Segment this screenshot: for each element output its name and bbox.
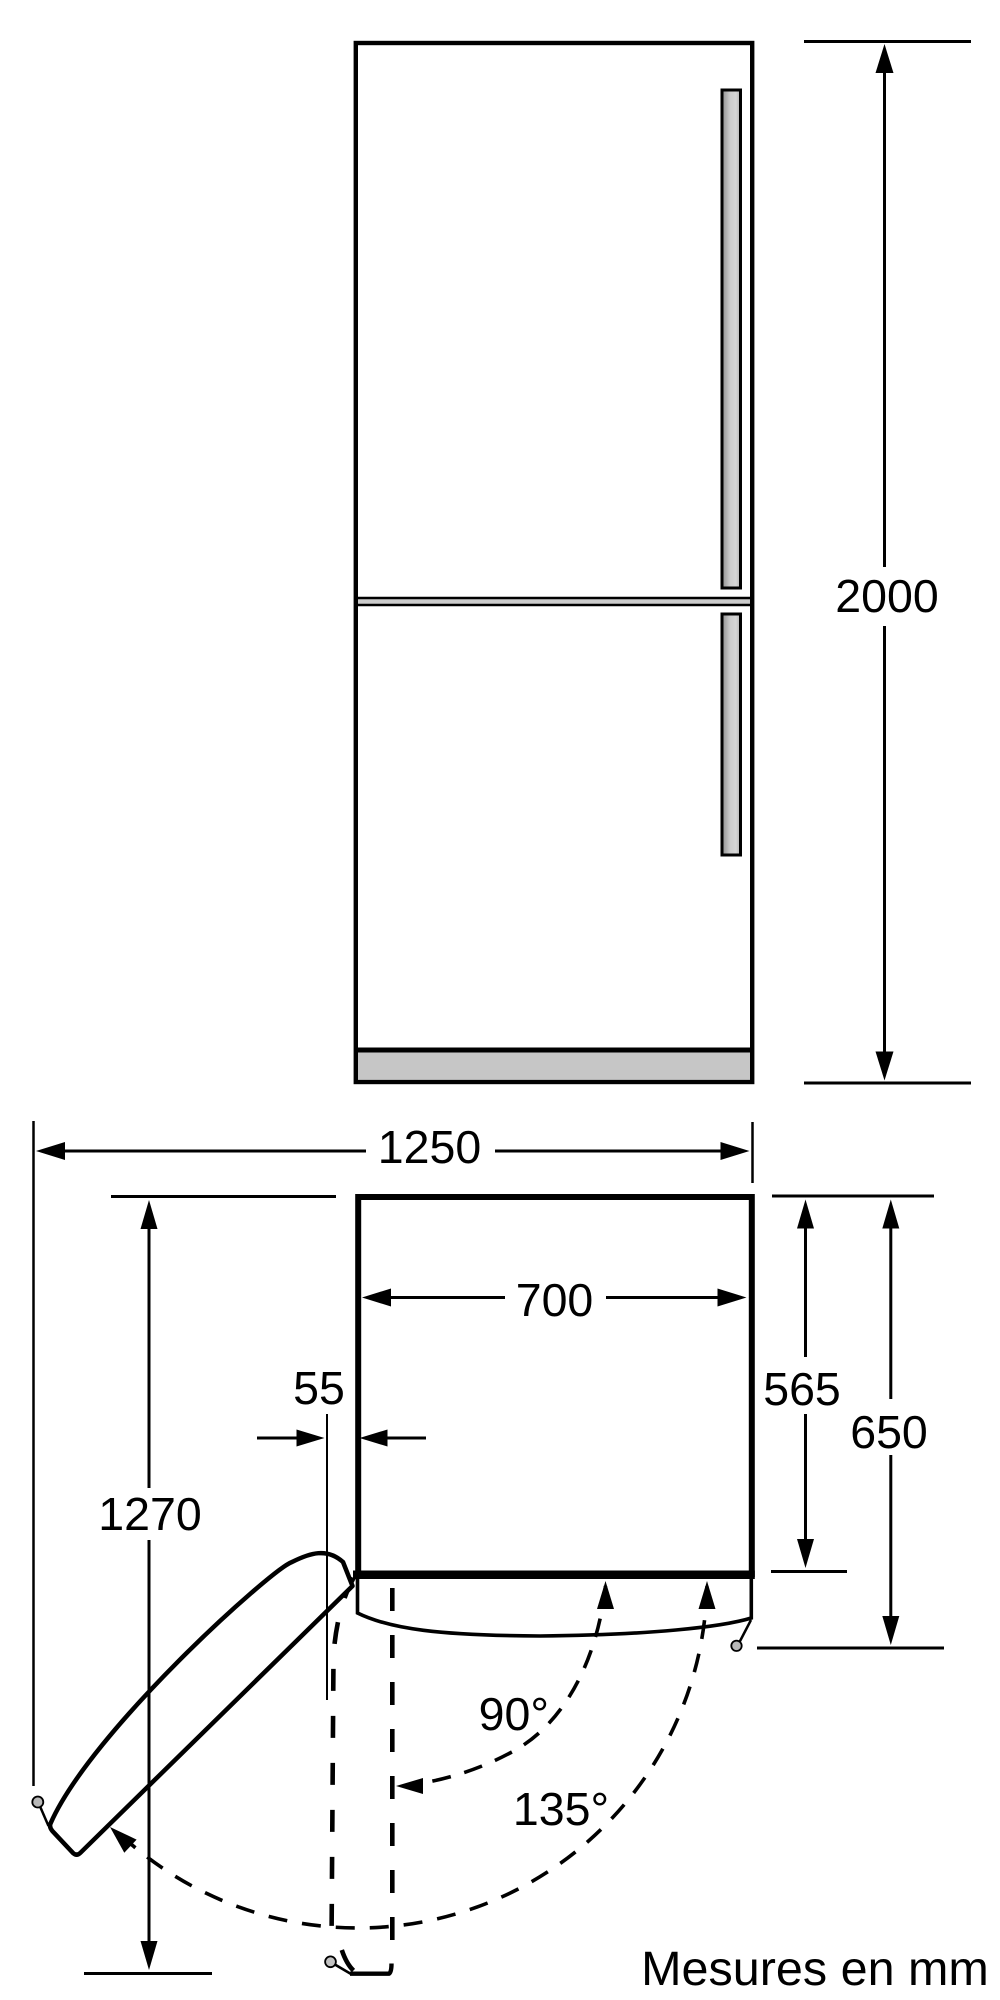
svg-text:650: 650 <box>850 1406 928 1458</box>
svg-text:2000: 2000 <box>835 570 938 622</box>
svg-text:55: 55 <box>293 1362 345 1414</box>
svg-text:135°: 135° <box>513 1783 609 1835</box>
svg-text:1250: 1250 <box>378 1121 481 1173</box>
svg-text:565: 565 <box>763 1363 841 1415</box>
svg-text:700: 700 <box>516 1274 594 1326</box>
svg-text:1270: 1270 <box>98 1488 201 1540</box>
svg-text:90°: 90° <box>479 1688 549 1740</box>
svg-text:Mesures en mm: Mesures en mm <box>641 1942 989 1996</box>
